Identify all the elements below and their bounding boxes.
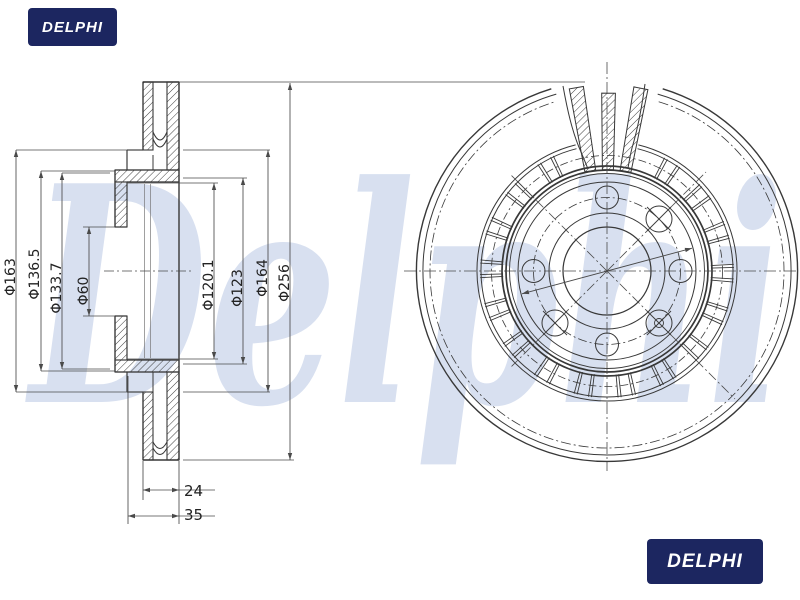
delphi-logo-top-left: DELPHI xyxy=(28,8,117,46)
section-hatched-area xyxy=(115,170,179,182)
dimension-arrowhead xyxy=(14,385,18,392)
delphi-logo-text: DELPHI xyxy=(667,551,743,573)
dim-label-123: Φ123 xyxy=(230,269,246,307)
dimension-arrowhead xyxy=(143,488,150,492)
section-hatched-area xyxy=(167,82,179,170)
brake-disc-technical-drawing: Delphi Φ163 Φ136.5 Φ133.7 Φ60 Φ120.1 Φ12… xyxy=(0,0,800,600)
dim-label-136-5: Φ136.5 xyxy=(27,248,43,299)
delphi-logo-bottom-right: DELPHI xyxy=(647,539,763,584)
dim-label-163: Φ163 xyxy=(3,258,19,296)
dim-label-164: Φ164 xyxy=(255,259,271,297)
dimension-arrowhead xyxy=(128,514,135,518)
dimension-arrowhead xyxy=(14,150,18,157)
section-hatched-area xyxy=(115,360,179,372)
vent-spoke-edge xyxy=(480,274,503,275)
dim-label-133-7: Φ133.7 xyxy=(49,262,65,313)
drawing-stage: Delphi Φ163 Φ136.5 Φ133.7 Φ60 Φ120.1 Φ12… xyxy=(0,0,800,600)
dim-label-60: Φ60 xyxy=(76,277,92,306)
section-hatched-area xyxy=(143,82,153,150)
section-hatched-area xyxy=(115,182,127,227)
catalog-drawing-page: { "watermark": { "text": "Delphi" }, "lo… xyxy=(0,0,800,600)
section-hatched-area xyxy=(167,372,179,460)
vent-spoke-edge xyxy=(711,267,734,268)
dim-label-24: 24 xyxy=(184,482,203,500)
cut-vane-hatched xyxy=(602,93,616,170)
delphi-logo-text: DELPHI xyxy=(42,19,103,36)
section-hatched-area xyxy=(143,392,153,460)
dim-label-35: 35 xyxy=(184,506,203,524)
dimension-arrowhead xyxy=(172,514,179,518)
dim-label-256: Φ256 xyxy=(277,264,293,302)
dim-label-120-1: Φ120.1 xyxy=(201,259,217,310)
dimension-arrowhead xyxy=(172,488,179,492)
dimension-arrowhead xyxy=(288,83,292,90)
section-hatched-area xyxy=(115,316,127,360)
